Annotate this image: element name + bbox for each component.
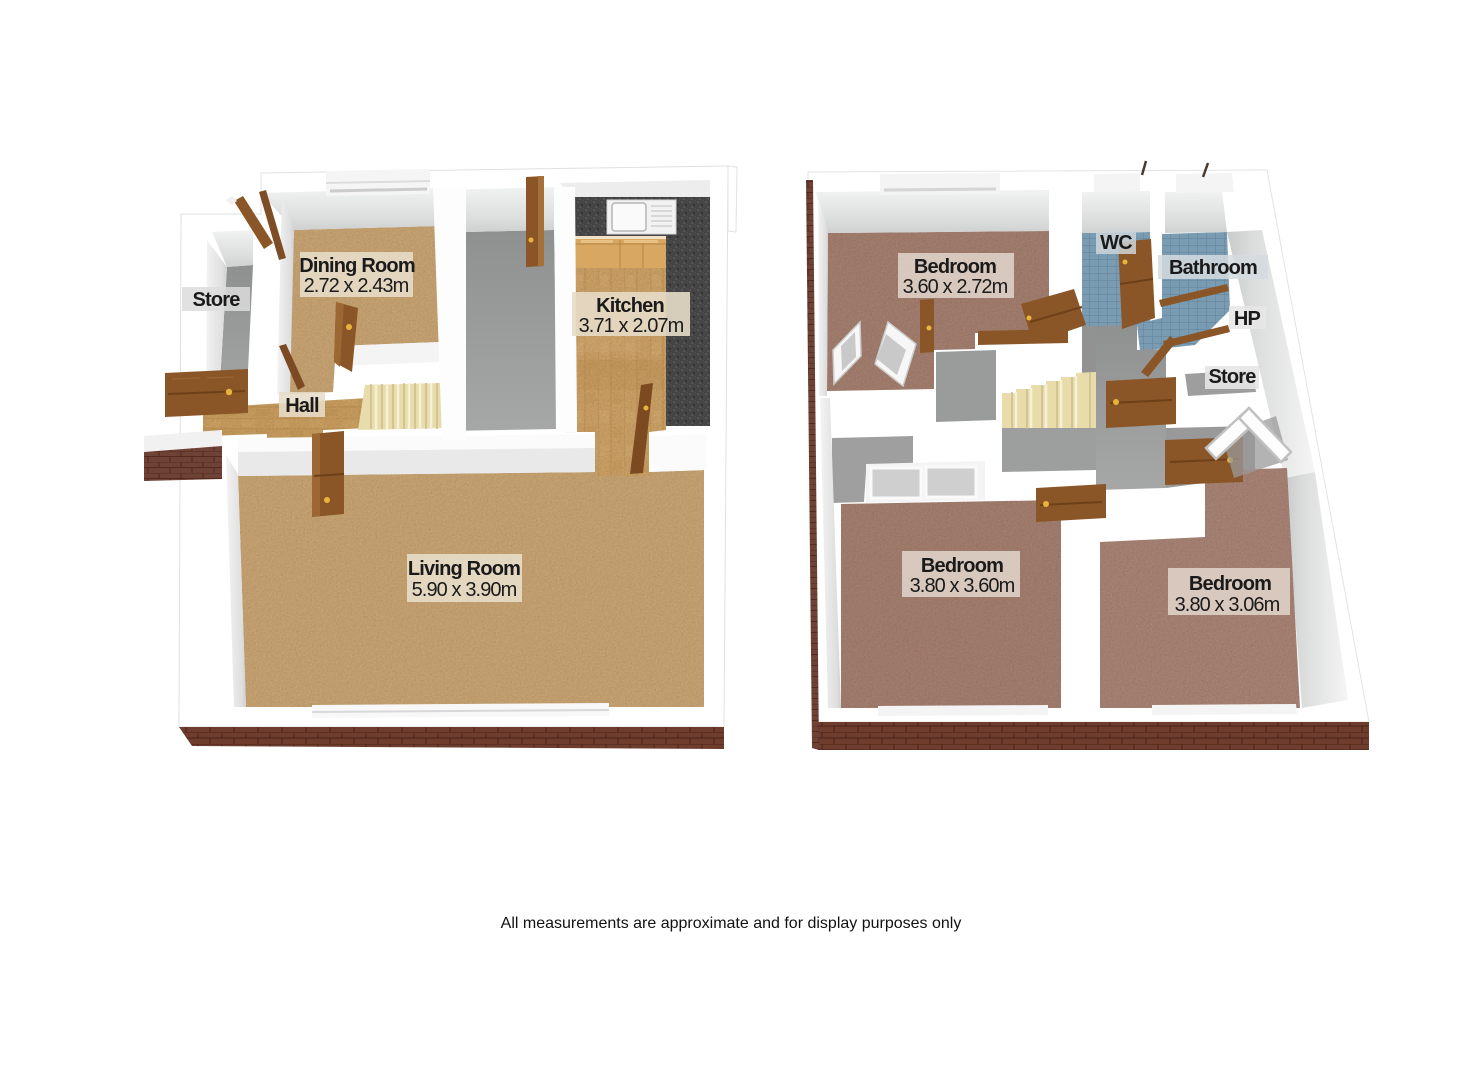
svg-text:3.80 x 3.60m: 3.80 x 3.60m bbox=[910, 575, 1015, 597]
svg-text:Hall: Hall bbox=[285, 395, 319, 417]
svg-text:Dining Room: Dining Room bbox=[299, 255, 415, 277]
svg-text:3.80 x 3.06m: 3.80 x 3.06m bbox=[1175, 594, 1280, 616]
svg-text:Bedroom: Bedroom bbox=[921, 555, 1003, 577]
svg-text:2.72 x 2.43m: 2.72 x 2.43m bbox=[304, 275, 409, 297]
svg-text:All measurements are approxima: All measurements are approximate and for… bbox=[501, 915, 962, 932]
svg-text:Bedroom: Bedroom bbox=[1189, 573, 1271, 595]
svg-text:3.71 x 2.07m: 3.71 x 2.07m bbox=[579, 315, 684, 337]
svg-text:Store: Store bbox=[1208, 366, 1256, 388]
svg-text:Living Room: Living Room bbox=[408, 558, 520, 580]
svg-text:3.60 x 2.72m: 3.60 x 2.72m bbox=[903, 276, 1008, 298]
svg-text:Bathroom: Bathroom bbox=[1169, 257, 1257, 279]
svg-text:Bedroom: Bedroom bbox=[914, 256, 996, 278]
svg-text:HP: HP bbox=[1234, 308, 1261, 330]
svg-text:Kitchen: Kitchen bbox=[596, 295, 664, 317]
svg-text:Store: Store bbox=[192, 289, 240, 311]
svg-text:5.90 x 3.90m: 5.90 x 3.90m bbox=[412, 579, 517, 601]
svg-text:WC: WC bbox=[1100, 232, 1132, 254]
